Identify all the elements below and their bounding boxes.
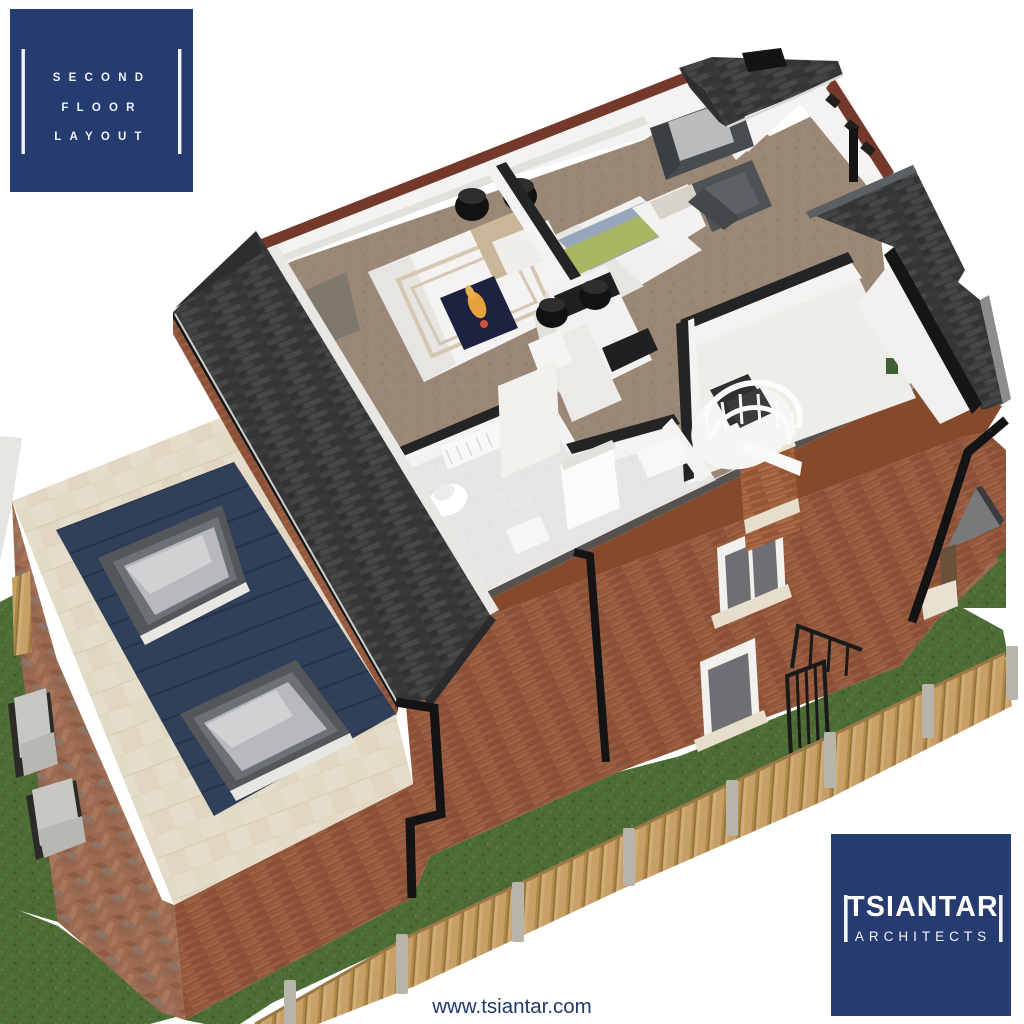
svg-text:ARCHITECTS: ARCHITECTS xyxy=(855,929,991,944)
svg-text:TSIANTAR: TSIANTAR xyxy=(847,891,999,923)
svg-text:SECOND: SECOND xyxy=(53,72,151,84)
svg-text:LAYOUT: LAYOUT xyxy=(54,131,149,143)
svg-text:www.tsiantar.com: www.tsiantar.com xyxy=(431,995,592,1018)
svg-text:FLOOR: FLOOR xyxy=(61,102,142,114)
